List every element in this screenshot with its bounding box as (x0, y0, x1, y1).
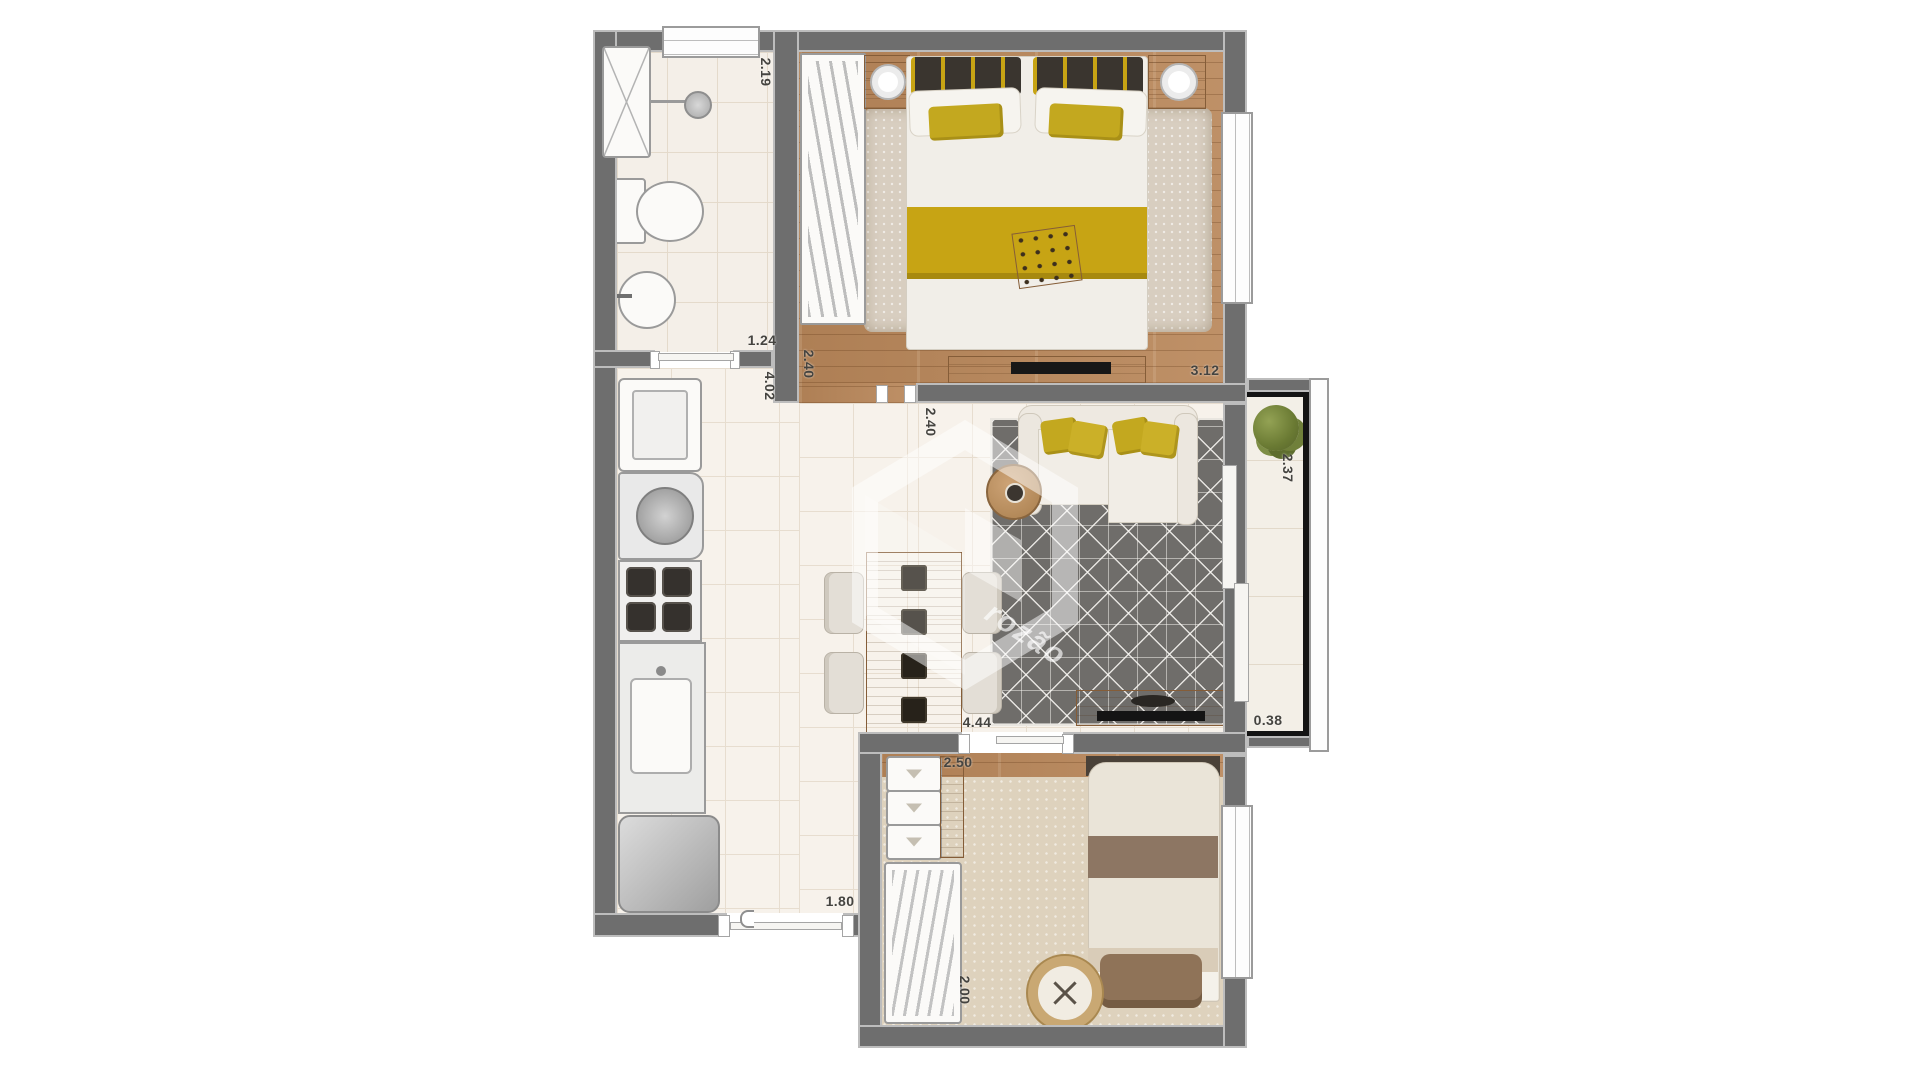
wall-kitchen-bottom-left (593, 913, 727, 937)
bedroom1-door-threshold (799, 383, 916, 403)
placemat (901, 565, 927, 591)
round-stool (1028, 956, 1102, 1030)
wardrobe-hangers-icon (808, 61, 858, 317)
lamp-right (1160, 63, 1198, 101)
kitchen-counter (618, 642, 706, 814)
dim-living-width: 4.44 (963, 714, 992, 730)
balcony-sliding-door-panel (1222, 465, 1237, 589)
chevron-icon (906, 770, 922, 779)
table-decor (1005, 483, 1025, 503)
placemat (901, 697, 927, 723)
decor-bowl (1131, 695, 1175, 707)
dim-bedroom2-depth: 2.00 (957, 976, 973, 1005)
closet-box (886, 756, 942, 792)
bathroom-window (662, 26, 760, 58)
washing-machine (618, 472, 704, 560)
bedroom2-door-jamb (958, 734, 970, 754)
bedroom1-window (1221, 112, 1253, 304)
floor-plan-canvas: 2.19 1.24 4.02 2.40 3.12 2.40 2.37 4.44 … (0, 0, 1920, 1080)
brown-runner (1088, 836, 1218, 878)
closet-box (886, 824, 942, 860)
shower-head (684, 91, 712, 119)
burner-icon (662, 602, 692, 632)
balcony-outer-frame (1309, 378, 1329, 752)
laundry-tub (618, 378, 702, 472)
bedroom1-door-jamb (904, 385, 916, 403)
bathroom-sink (618, 271, 676, 329)
brown-pillow (1100, 954, 1202, 1008)
dim-balcony-length: 2.37 (1280, 454, 1296, 483)
kitchen-faucet (656, 666, 666, 676)
yellow-pillow (1048, 103, 1124, 141)
closet-side-panel (940, 756, 964, 858)
laundry-tub-basin (632, 390, 688, 460)
wall-bedroom1-living (916, 383, 1247, 403)
refrigerator (618, 815, 720, 913)
dim-bedroom2-width: 2.50 (944, 754, 973, 770)
dim-living-depth: 2.40 (923, 408, 939, 437)
chevron-icon (906, 804, 922, 813)
dim-bedroom1-entry: 2.40 (801, 350, 817, 379)
wall-bedroom2-left (858, 732, 882, 1048)
tv-icon (1011, 362, 1111, 374)
round-side-table (986, 464, 1042, 520)
bathroom-door-leaf (658, 353, 734, 361)
living-tv-console (1076, 690, 1224, 726)
placemat (901, 609, 927, 635)
lamp-left (870, 64, 906, 100)
placemat (901, 653, 927, 679)
sofa (1018, 405, 1196, 523)
closet-box (886, 790, 942, 826)
bedroom1-wardrobe (800, 53, 866, 325)
yellow-pillow (1140, 421, 1180, 460)
dim-entry-width: 1.80 (826, 893, 855, 909)
yellow-pillow (928, 103, 1004, 141)
balcony-railing-bottom (1247, 731, 1305, 736)
toilet-bowl (636, 181, 704, 242)
chevron-icon (906, 838, 922, 847)
cooktop-stove (618, 560, 702, 642)
bedroom2-window (1221, 805, 1253, 979)
wall-bedroom2-top-left (858, 732, 962, 754)
bedroom2-door-leaf (996, 736, 1064, 744)
balcony-railing-top (1247, 392, 1305, 397)
wardrobe-hangers-icon (892, 870, 954, 1016)
burner-icon (626, 567, 656, 597)
entry-door-handle (740, 910, 754, 928)
shower-tray (602, 46, 651, 158)
dining-chair (962, 572, 1002, 634)
dim-balcony-width: 0.38 (1254, 712, 1283, 728)
dim-kitchen-length: 4.02 (762, 372, 778, 401)
wall-bath-bedroom1 (773, 30, 799, 403)
dining-chair (824, 572, 864, 634)
tv-icon (1097, 711, 1205, 721)
bedroom1-tv-console (948, 356, 1146, 384)
dining-chair (962, 652, 1002, 714)
burner-icon (662, 567, 692, 597)
burner-icon (626, 602, 656, 632)
yellow-pillow (1067, 420, 1108, 460)
breakfast-tray (1011, 225, 1082, 289)
wall-bedroom2-bottom (858, 1025, 1247, 1048)
single-bed (1086, 756, 1220, 1016)
double-bed (906, 56, 1148, 350)
dining-table (866, 552, 962, 734)
dim-bath-passage: 1.24 (748, 332, 777, 348)
wall-bath-bottom-left (593, 350, 655, 368)
balcony-plant (1253, 405, 1299, 451)
washer-door (636, 487, 694, 545)
bedroom2-wardrobe (884, 862, 962, 1024)
dim-bedroom1-width: 3.12 (1191, 362, 1220, 378)
entry-door-jamb (718, 915, 730, 937)
wall-left (593, 30, 617, 937)
dining-chair (824, 652, 864, 714)
kitchen-sink (630, 678, 692, 774)
bedroom1-door-jamb (876, 385, 888, 403)
dim-bathroom-width: 2.19 (758, 58, 774, 87)
entry-door-jamb (842, 915, 854, 937)
balcony-sliding-door-panel (1234, 583, 1249, 702)
wall-bedroom2-top-right (1063, 732, 1247, 754)
